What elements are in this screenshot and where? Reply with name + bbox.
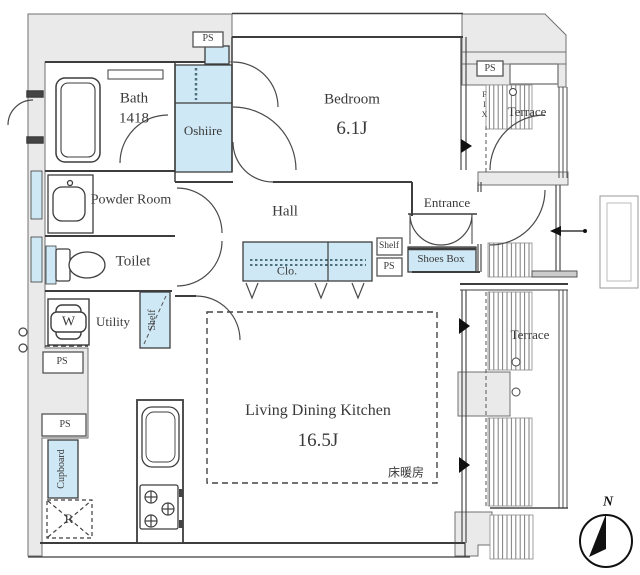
ldk-floor-heating-area	[207, 312, 437, 483]
folding-door-marks	[246, 283, 364, 298]
cupboard-label: Cupboard	[56, 449, 69, 488]
refrigerator-label: R	[65, 511, 74, 527]
entrance-label: Entrance	[424, 195, 470, 211]
toilet-fixtures	[56, 249, 105, 281]
floor-plan-canvas	[0, 0, 640, 575]
ps-top-label: PS	[202, 33, 213, 46]
terrace-top-label: Terrace	[508, 104, 547, 120]
compass-north-label: N	[603, 493, 613, 511]
toilet-label: Toilet	[116, 253, 151, 272]
ldk-size-label: 16.5J	[298, 429, 339, 453]
bath-size-label: 1418	[119, 110, 149, 129]
washer-label: W	[62, 313, 75, 331]
utility-label: Utility	[96, 314, 130, 330]
powder-room-label: Powder Room	[88, 191, 174, 209]
ps-mid-label: PS	[383, 261, 394, 274]
shelf-utility-label: Shelf	[147, 309, 160, 330]
powder-fixtures	[48, 175, 93, 233]
bedroom-label: Bedroom	[324, 91, 380, 110]
closet-label: Clo.	[277, 264, 297, 279]
floor-plan: PS Bath 1418 Oshiire Bedroom 6.1J PS FIX…	[0, 0, 640, 575]
shoes-box-label: Shoes Box	[417, 253, 464, 267]
hall-label: Hall	[272, 203, 298, 222]
shelf-hall-label: Shelf	[379, 241, 399, 253]
north-wall	[232, 14, 463, 38]
kitchen-fixtures	[137, 400, 183, 543]
ps-top-right-label: PS	[484, 63, 495, 76]
floor-heating-label: 床暖房	[388, 466, 424, 481]
fix-window-label: FIX	[479, 90, 489, 120]
terrace-decking	[486, 85, 533, 559]
compass	[580, 514, 632, 567]
bath-label: Bath	[120, 90, 148, 109]
bedroom-size-label: 6.1J	[336, 117, 367, 141]
oshiire-label: Oshiire	[184, 123, 222, 139]
ldk-label: Living Dining Kitchen	[245, 401, 391, 421]
terrace-right-label: Terrace	[511, 327, 550, 343]
ps-bottom-label: PS	[59, 419, 70, 432]
ps-left-label: PS	[56, 356, 67, 369]
